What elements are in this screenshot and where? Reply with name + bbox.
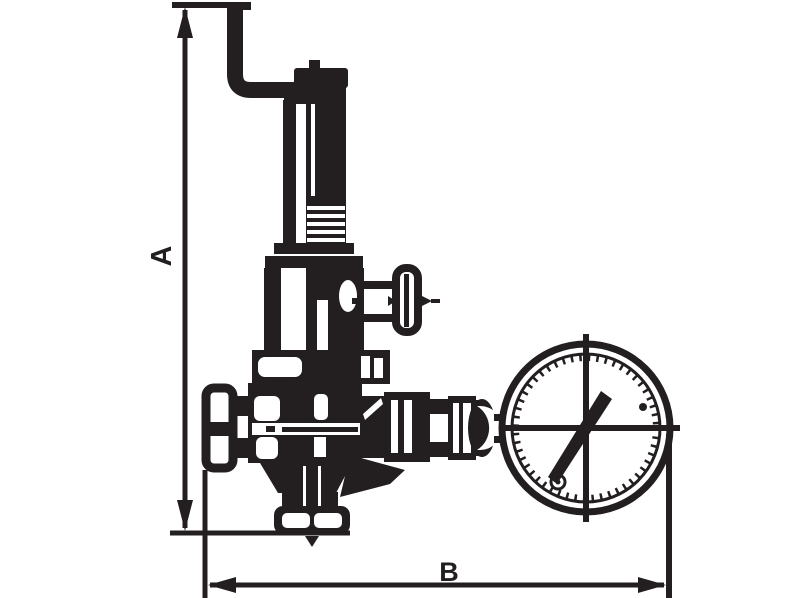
pressure-gauge-icon <box>500 334 680 522</box>
gauge-screw-dot <box>639 403 647 411</box>
gauge-connection-icon <box>362 392 510 462</box>
discharge-pipe-icon <box>227 2 302 90</box>
valve-drawing <box>203 2 680 547</box>
spring-bonnet-icon <box>264 94 364 353</box>
inlet-union-icon <box>203 388 250 468</box>
arrow-down-icon <box>177 500 193 531</box>
drawing-canvas: A B <box>0 0 800 598</box>
arrow-left-icon <box>208 577 236 593</box>
side-branch-tee-handle-icon <box>352 268 440 332</box>
valve-dimensional-drawing: A B <box>0 0 800 598</box>
dimension-a-label: A <box>146 245 178 266</box>
dimension-b-label: B <box>439 557 459 587</box>
arrow-up-icon <box>177 7 193 38</box>
arrow-right-icon <box>638 577 666 593</box>
flow-arrow-icon <box>305 536 319 547</box>
diaphragm-flange-icon <box>252 350 390 384</box>
